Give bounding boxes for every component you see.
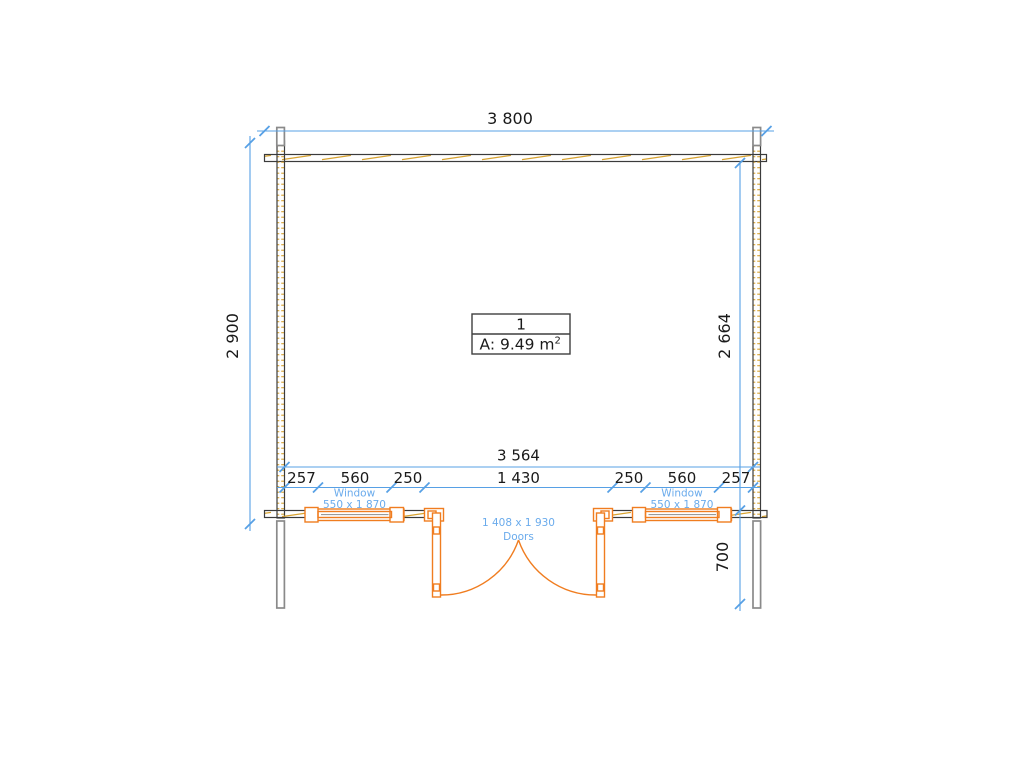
door-leaf-left-block-b <box>434 584 440 591</box>
dim-segment-3: 250 <box>394 469 423 487</box>
porch-post-bottom-left <box>277 521 285 608</box>
dimensions-group: 3 800 2 900 2 664 700 3 564 <box>223 109 774 611</box>
right-wall <box>753 141 761 518</box>
window-right-block-a <box>633 508 646 523</box>
dim-inner-height-value: 2 664 <box>715 313 734 359</box>
corner-post-top-right <box>753 128 761 146</box>
left-wall <box>277 141 285 518</box>
doors-label: Doors <box>503 531 534 543</box>
window-right-label: Window <box>661 488 703 500</box>
door-swing-arc-right <box>519 540 597 595</box>
door-leaf-right-block-b <box>598 584 604 591</box>
dim-overall-width-value: 3 800 <box>487 109 533 128</box>
door-leaf-left-block-a <box>434 527 440 534</box>
window-left-size: 550 x 1 870 <box>323 499 386 511</box>
door-leaf-right-block-a <box>598 527 604 534</box>
dim-inner-width-value: 3 564 <box>497 447 540 465</box>
dim-segment-7: 257 <box>722 469 751 487</box>
room-label: 1 A: 9.49 m2 <box>472 314 570 354</box>
dim-overall-height: 2 900 <box>223 136 255 531</box>
dim-inner-height: 2 664 <box>715 158 745 516</box>
dim-overall-height-value: 2 900 <box>223 313 242 359</box>
porch-post-bottom-right <box>753 521 761 608</box>
room-number: 1 <box>516 316 526 334</box>
room-area: A: 9.49 m2 <box>480 336 561 354</box>
doors-size: 1 408 x 1 930 <box>482 517 555 529</box>
room-area-superscript: 2 <box>555 336 561 347</box>
dim-segment-1: 257 <box>287 469 316 487</box>
window-right-size: 550 x 1 870 <box>651 499 714 511</box>
dim-segment-6: 560 <box>668 469 697 487</box>
door-swing-arc-left <box>441 540 519 595</box>
window-left-label: Window <box>334 488 376 500</box>
floor-plan-svg: 1 A: 9.49 m2 3 800 2 900 2 664 <box>0 0 1024 768</box>
dim-segment-4: 1 430 <box>497 469 540 487</box>
top-wall <box>265 155 767 162</box>
dim-segment-2: 560 <box>341 469 370 487</box>
dim-overall-width: 3 800 <box>257 109 774 136</box>
dim-porch-depth: 700 <box>713 511 745 612</box>
dim-porch-depth-value: 700 <box>713 542 732 573</box>
room-area-text: A: 9.49 m <box>480 336 555 354</box>
window-left-block-a <box>305 508 318 523</box>
dim-segment-5: 250 <box>615 469 644 487</box>
corner-post-top-left <box>277 128 285 146</box>
